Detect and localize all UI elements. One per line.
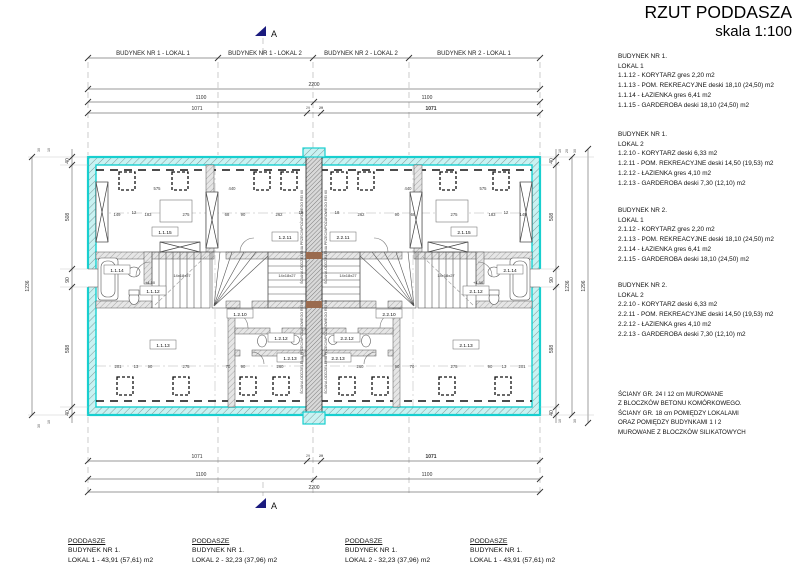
footer-heading: PODDASZE xyxy=(68,537,153,546)
legend-row: 1.1.14 - ŁAZIENKA gres 6,41 m2 xyxy=(618,91,774,101)
dim-num: 13 xyxy=(134,364,139,369)
dim-value: 30 xyxy=(37,424,41,428)
room-code: 2.1.12 xyxy=(469,289,483,295)
section-letter-top: A xyxy=(271,29,277,39)
dim-value: 20 xyxy=(565,149,569,153)
legend-row: 2.2.11 - POM. REKREACYJNE deski 14,50 (1… xyxy=(618,310,773,320)
footer-heading: PODDASZE xyxy=(192,537,277,546)
dim-num: 275 xyxy=(451,364,459,369)
section-triangle-bottom xyxy=(255,498,266,508)
legend-block-3: BUDYNEK NR 2. LOKAL 1 2.1.12 - KORYTARZ … xyxy=(618,206,774,264)
legend-lokal: LOKAL 2 xyxy=(618,140,773,150)
dim-num: 70 xyxy=(226,364,231,369)
legend-row: 2.1.15 - GARDEROBA deski 18,10 (24,50) m… xyxy=(618,255,774,265)
legend-building: BUDYNEK NR 1. xyxy=(618,52,774,62)
dim-value: 1100 xyxy=(196,95,207,101)
dim-num: 260 xyxy=(277,364,285,369)
dim-num: 575 xyxy=(480,186,488,191)
footer-block-2: PODDASZE BUDYNEK NR 1. LOKAL 2 - 32,23 (… xyxy=(192,537,277,565)
note-line: MUROWANE Z BLOCZKÓW SILIKATOWYCH xyxy=(618,428,746,437)
dim-num: 12 xyxy=(132,210,137,215)
dim-num: 275 xyxy=(183,212,191,217)
firewall-label: ŚCIANA ODDZIELENIA PRZECIWPOŻAROWEGO REI… xyxy=(323,190,328,284)
room-code: 2.2.12 xyxy=(340,336,354,342)
dim-value: 10 xyxy=(47,420,51,424)
dim-num: 183 xyxy=(145,212,153,217)
dim-num: 70 xyxy=(410,364,415,369)
dim-value: 29 xyxy=(319,454,323,458)
room-code: 1.2.12 xyxy=(274,336,288,342)
stair-label: 14x18x27 xyxy=(278,273,296,278)
dim-num: 68 xyxy=(225,212,230,217)
legend-row: 1.1.13 - POM. REKREACYJNE deski 18,10 (2… xyxy=(618,81,774,91)
legend-block-1: BUDYNEK NR 1. LOKAL 1 1.1.12 - KORYTARZ … xyxy=(618,52,774,110)
footer-building: BUDYNEK NR 1. xyxy=(192,546,277,555)
room-code: 2.1.13 xyxy=(459,343,473,349)
room-code: 1.2.11 xyxy=(279,235,292,241)
axis-label: BUDYNEK NR 1 - LOKAL 2 xyxy=(228,51,302,57)
dim-value: 1071 xyxy=(191,106,202,112)
dim-num: 201 xyxy=(519,364,527,369)
dim-value: 40 xyxy=(65,158,71,164)
firewall-label: ŚCIANA ODDZIELENIA PRZECIWPOŻAROWEGO REI… xyxy=(299,300,304,394)
window-gap-right xyxy=(530,269,542,287)
dim-num: 13 xyxy=(502,364,507,369)
dim-num: 440 xyxy=(229,186,237,191)
firewall-label: ŚCIANA ODDZIELENIA PRZECIWPOŻAROWEGO REI… xyxy=(323,300,328,394)
dim-num: 90 xyxy=(395,364,400,369)
dim-value: 40 xyxy=(549,158,555,164)
window-gap-left xyxy=(86,269,98,287)
dim-num: 149 xyxy=(114,212,122,217)
dim-value: 598 xyxy=(549,345,555,354)
dim-num: 260 xyxy=(357,364,365,369)
dim-value: 2200 xyxy=(308,82,319,88)
footer-area: LOKAL 2 - 32,23 (37,96) m2 xyxy=(192,556,277,565)
dim-value: 10 xyxy=(558,149,562,153)
legend-building: BUDYNEK NR 2. xyxy=(618,281,773,291)
legend-row: 2.2.10 - KORYTARZ deski 6,33 m2 xyxy=(618,300,773,310)
room-code: 1.1.15 xyxy=(158,230,172,236)
note-line: ORAZ POMIĘDZY BUDYNKAMI 1 I 2 xyxy=(618,418,746,427)
dim-num: 262 xyxy=(358,212,366,217)
dim-value: 40 xyxy=(65,410,71,416)
section-letter-bottom: A xyxy=(271,501,277,511)
footer-building: BUDYNEK NR 1. xyxy=(470,546,555,555)
dim-value: 1071 xyxy=(425,454,436,460)
legend-lokal: LOKAL 1 xyxy=(618,62,774,72)
legend-row: 1.1.12 - KORYTARZ gres 2,20 m2 xyxy=(618,71,774,81)
stair-label: 14x18x27 xyxy=(173,273,191,278)
toilet-bath2-left xyxy=(258,335,267,347)
dim-num: 68 xyxy=(411,212,416,217)
room-code: 1.1.13 xyxy=(156,343,170,349)
dim-value: 40 xyxy=(549,410,555,416)
dim-value: 508 xyxy=(549,213,555,222)
dim-num: 90 xyxy=(395,212,400,217)
dim-value: 29 xyxy=(306,454,310,458)
section-markers: A A xyxy=(255,26,277,511)
legend-row: 2.2.12 - ŁAZIENKA gres 4,10 m2 xyxy=(618,320,773,330)
note-line: ŚCIANY GR. 18 cm POMIĘDZY LOKALAMI xyxy=(618,409,746,418)
footer-area: LOKAL 1 - 43,91 (57,61) m2 xyxy=(68,556,153,565)
footer-heading: PODDASZE xyxy=(470,537,555,546)
dim-value: 30 xyxy=(37,148,41,152)
room-code: 2.2.11 xyxy=(337,235,350,241)
axis-label: BUDYNEK NR 2 - LOKAL 2 xyxy=(324,51,398,57)
dim-num: 90 xyxy=(488,364,493,369)
legend-block-4: BUDYNEK NR 2. LOKAL 2 2.2.10 - KORYTARZ … xyxy=(618,281,773,339)
dim-num: 90 xyxy=(148,364,153,369)
dim-value: 30 xyxy=(573,149,577,153)
room-code: 1.1.12 xyxy=(146,289,160,295)
note-line: Z BLOCZKÓW BETONU KOMÓRKOWEGO. xyxy=(618,399,746,408)
dim-value: 90 xyxy=(549,277,555,283)
room-code: 2.1.14 xyxy=(503,268,517,274)
legend-row: 2.1.12 - KORYTARZ gres 2,20 m2 xyxy=(618,225,774,235)
legend-row: 1.2.10 - KORYTARZ deski 6,33 m2 xyxy=(618,149,773,159)
legend-building: BUDYNEK NR 1. xyxy=(618,130,773,140)
dim-value: 90 xyxy=(65,277,71,283)
dim-value: 1236 xyxy=(25,280,31,291)
dim-value: 29 xyxy=(319,106,323,110)
footer-area: LOKAL 2 - 32,23 (37,96) m2 xyxy=(345,556,430,565)
room-code: 1.1.14 xyxy=(110,268,124,274)
footer-building: BUDYNEK NR 1. xyxy=(68,546,153,555)
dim-num: 440 xyxy=(405,186,413,191)
wall-notes: ŚCIANY GR. 24 I 12 cm MUROWANE Z BLOCZKÓ… xyxy=(618,390,746,437)
legend-row: 2.1.13 - POM. REKREACYJNE deski 18,10 (2… xyxy=(618,235,774,245)
dim-value: 1100 xyxy=(196,472,207,478)
firewall-party-wall xyxy=(303,148,325,424)
legend-row: 1.1.15 - GARDEROBA deski 18,10 (24,50) m… xyxy=(618,101,774,111)
dim-num: 275 xyxy=(183,364,191,369)
footer-heading: PODDASZE xyxy=(345,537,430,546)
dim-value: 10 xyxy=(558,419,562,423)
level-mark: +4,50 xyxy=(473,280,484,285)
firewall-top-cap xyxy=(303,148,325,157)
room-code: 2.2.13 xyxy=(331,356,345,362)
dim-value: 598 xyxy=(65,345,71,354)
legend-row: 1.2.11 - POM. REKREACYJNE deski 14,50 (1… xyxy=(618,159,773,169)
stair-label: 14x18x27 xyxy=(339,273,357,278)
section-triangle-top xyxy=(255,26,266,36)
dim-num: 90 xyxy=(241,212,246,217)
dim-value: 1071 xyxy=(191,454,202,460)
dim-num: 149 xyxy=(520,212,528,217)
level-mark: +4,50 xyxy=(145,280,156,285)
dim-num: 575 xyxy=(154,186,162,191)
axis-label: BUDYNEK NR 2 - LOKAL 1 xyxy=(437,51,511,57)
floor-plan-canvas: BUDYNEK NR 1 - LOKAL 1 BUDYNEK NR 1 - LO… xyxy=(0,0,612,520)
dim-value: 1071 xyxy=(425,106,436,112)
dim-value: 508 xyxy=(65,213,71,222)
axis-label: BUDYNEK NR 1 - LOKAL 1 xyxy=(116,51,190,57)
dim-value: 29 xyxy=(306,106,310,110)
footer-building: BUDYNEK NR 1. xyxy=(345,546,430,555)
dim-num: 12 xyxy=(504,210,509,215)
firewall-label: ŚCIANA ODDZIELENIA PRZECIWPOŻAROWEGO REI… xyxy=(299,190,304,284)
firewall-bottom-cap xyxy=(303,412,325,424)
footer-block-1: PODDASZE BUDYNEK NR 1. LOKAL 1 - 43,91 (… xyxy=(68,537,153,565)
dim-value: 1100 xyxy=(422,95,433,101)
legend-row: 2.1.14 - ŁAZIENKA gres 6,41 m2 xyxy=(618,245,774,255)
dim-num: 90 xyxy=(241,364,246,369)
drawing-title: RZUT PODDASZA xyxy=(645,2,792,23)
room-code: 1.2.13 xyxy=(283,356,297,362)
legend-block-2: BUDYNEK NR 1. LOKAL 2 1.2.10 - KORYTARZ … xyxy=(618,130,773,188)
legend-lokal: LOKAL 1 xyxy=(618,216,774,226)
dim-num: 183 xyxy=(489,212,497,217)
stair-label: 14x18x27 xyxy=(437,273,455,278)
footer-area: LOKAL 1 - 43,91 (57,61) m2 xyxy=(470,556,555,565)
toilet-bath2-right xyxy=(362,335,371,347)
legend-row: 1.2.12 - ŁAZIENKA gres 4,10 m2 xyxy=(618,169,773,179)
dim-num: 18 xyxy=(335,210,340,215)
dim-value: 1100 xyxy=(422,472,433,478)
legend-row: 2.2.13 - GARDEROBA deski 7,30 (12,10) m2 xyxy=(618,330,773,340)
room-code: 2.2.10 xyxy=(382,312,396,318)
drawing-scale: skala 1:100 xyxy=(645,23,792,40)
room-code: 2.1.15 xyxy=(457,230,471,236)
legend-lokal: LOKAL 2 xyxy=(618,291,773,301)
axis-labels: BUDYNEK NR 1 - LOKAL 1 BUDYNEK NR 1 - LO… xyxy=(116,51,511,57)
room-code: 1.2.10 xyxy=(233,312,247,318)
dim-value: 1236 xyxy=(565,280,571,291)
title-block: RZUT PODDASZA skala 1:100 xyxy=(645,2,792,40)
drawing-sheet: RZUT PODDASZA skala 1:100 xyxy=(0,0,800,573)
dim-num: 262 xyxy=(276,212,284,217)
note-line: ŚCIANY GR. 24 I 12 cm MUROWANE xyxy=(618,390,746,399)
dim-value: 1296 xyxy=(581,280,587,291)
footer-block-4: PODDASZE BUDYNEK NR 1. LOKAL 1 - 43,91 (… xyxy=(470,537,555,565)
dim-num: 201 xyxy=(115,364,123,369)
dim-value: 30 xyxy=(573,419,577,423)
footer-block-3: PODDASZE BUDYNEK NR 1. LOKAL 2 - 32,23 (… xyxy=(345,537,430,565)
dim-value: 2200 xyxy=(308,485,319,491)
dim-num: 275 xyxy=(451,212,459,217)
legend-building: BUDYNEK NR 2. xyxy=(618,206,774,216)
legend-row: 1.2.13 - GARDEROBA deski 7,30 (12,10) m2 xyxy=(618,179,773,189)
dim-value: 10 xyxy=(47,148,51,152)
